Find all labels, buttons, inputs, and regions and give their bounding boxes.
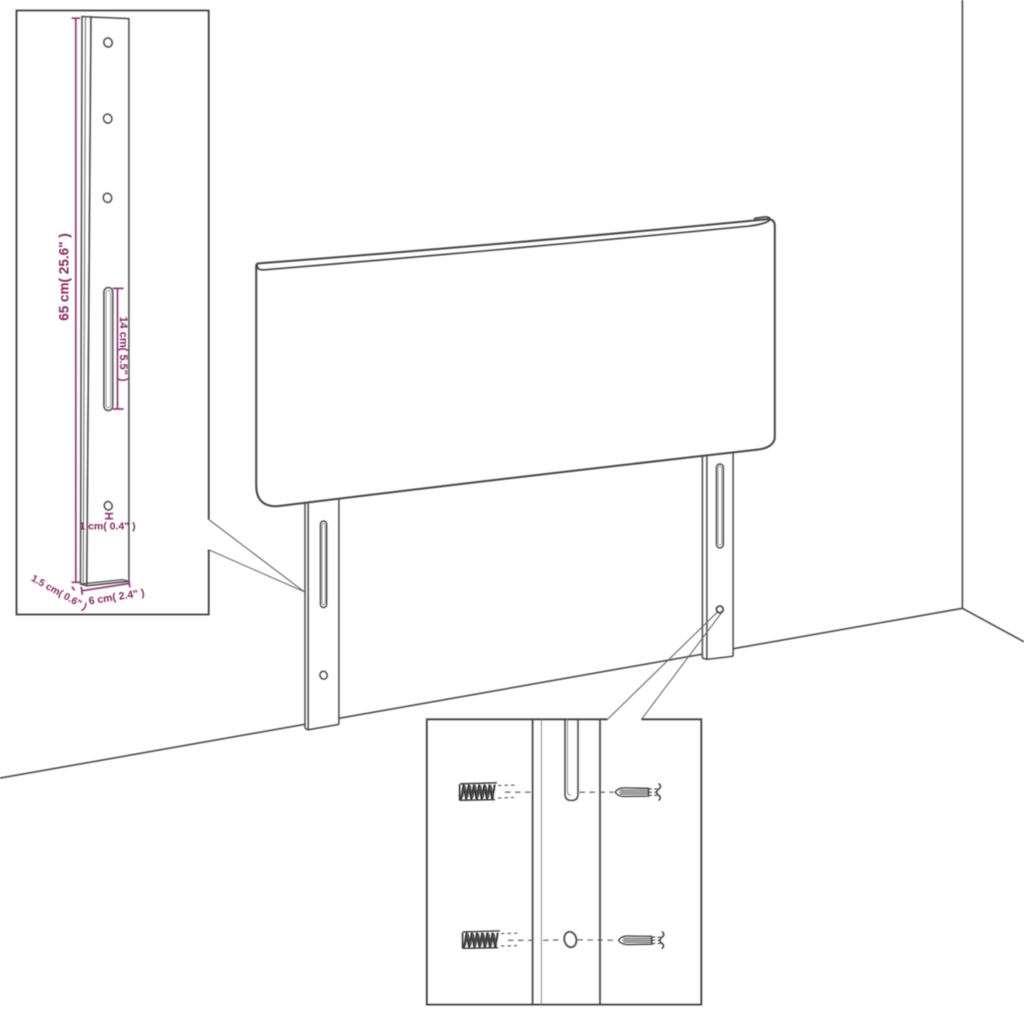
svg-text:1 cm( 0.4" ): 1 cm( 0.4" ) [79,521,135,533]
svg-text:65 cm( 25.6" ): 65 cm( 25.6" ) [57,233,72,320]
svg-text:14 cm( 5.5" ): 14 cm( 5.5" ) [117,316,129,381]
